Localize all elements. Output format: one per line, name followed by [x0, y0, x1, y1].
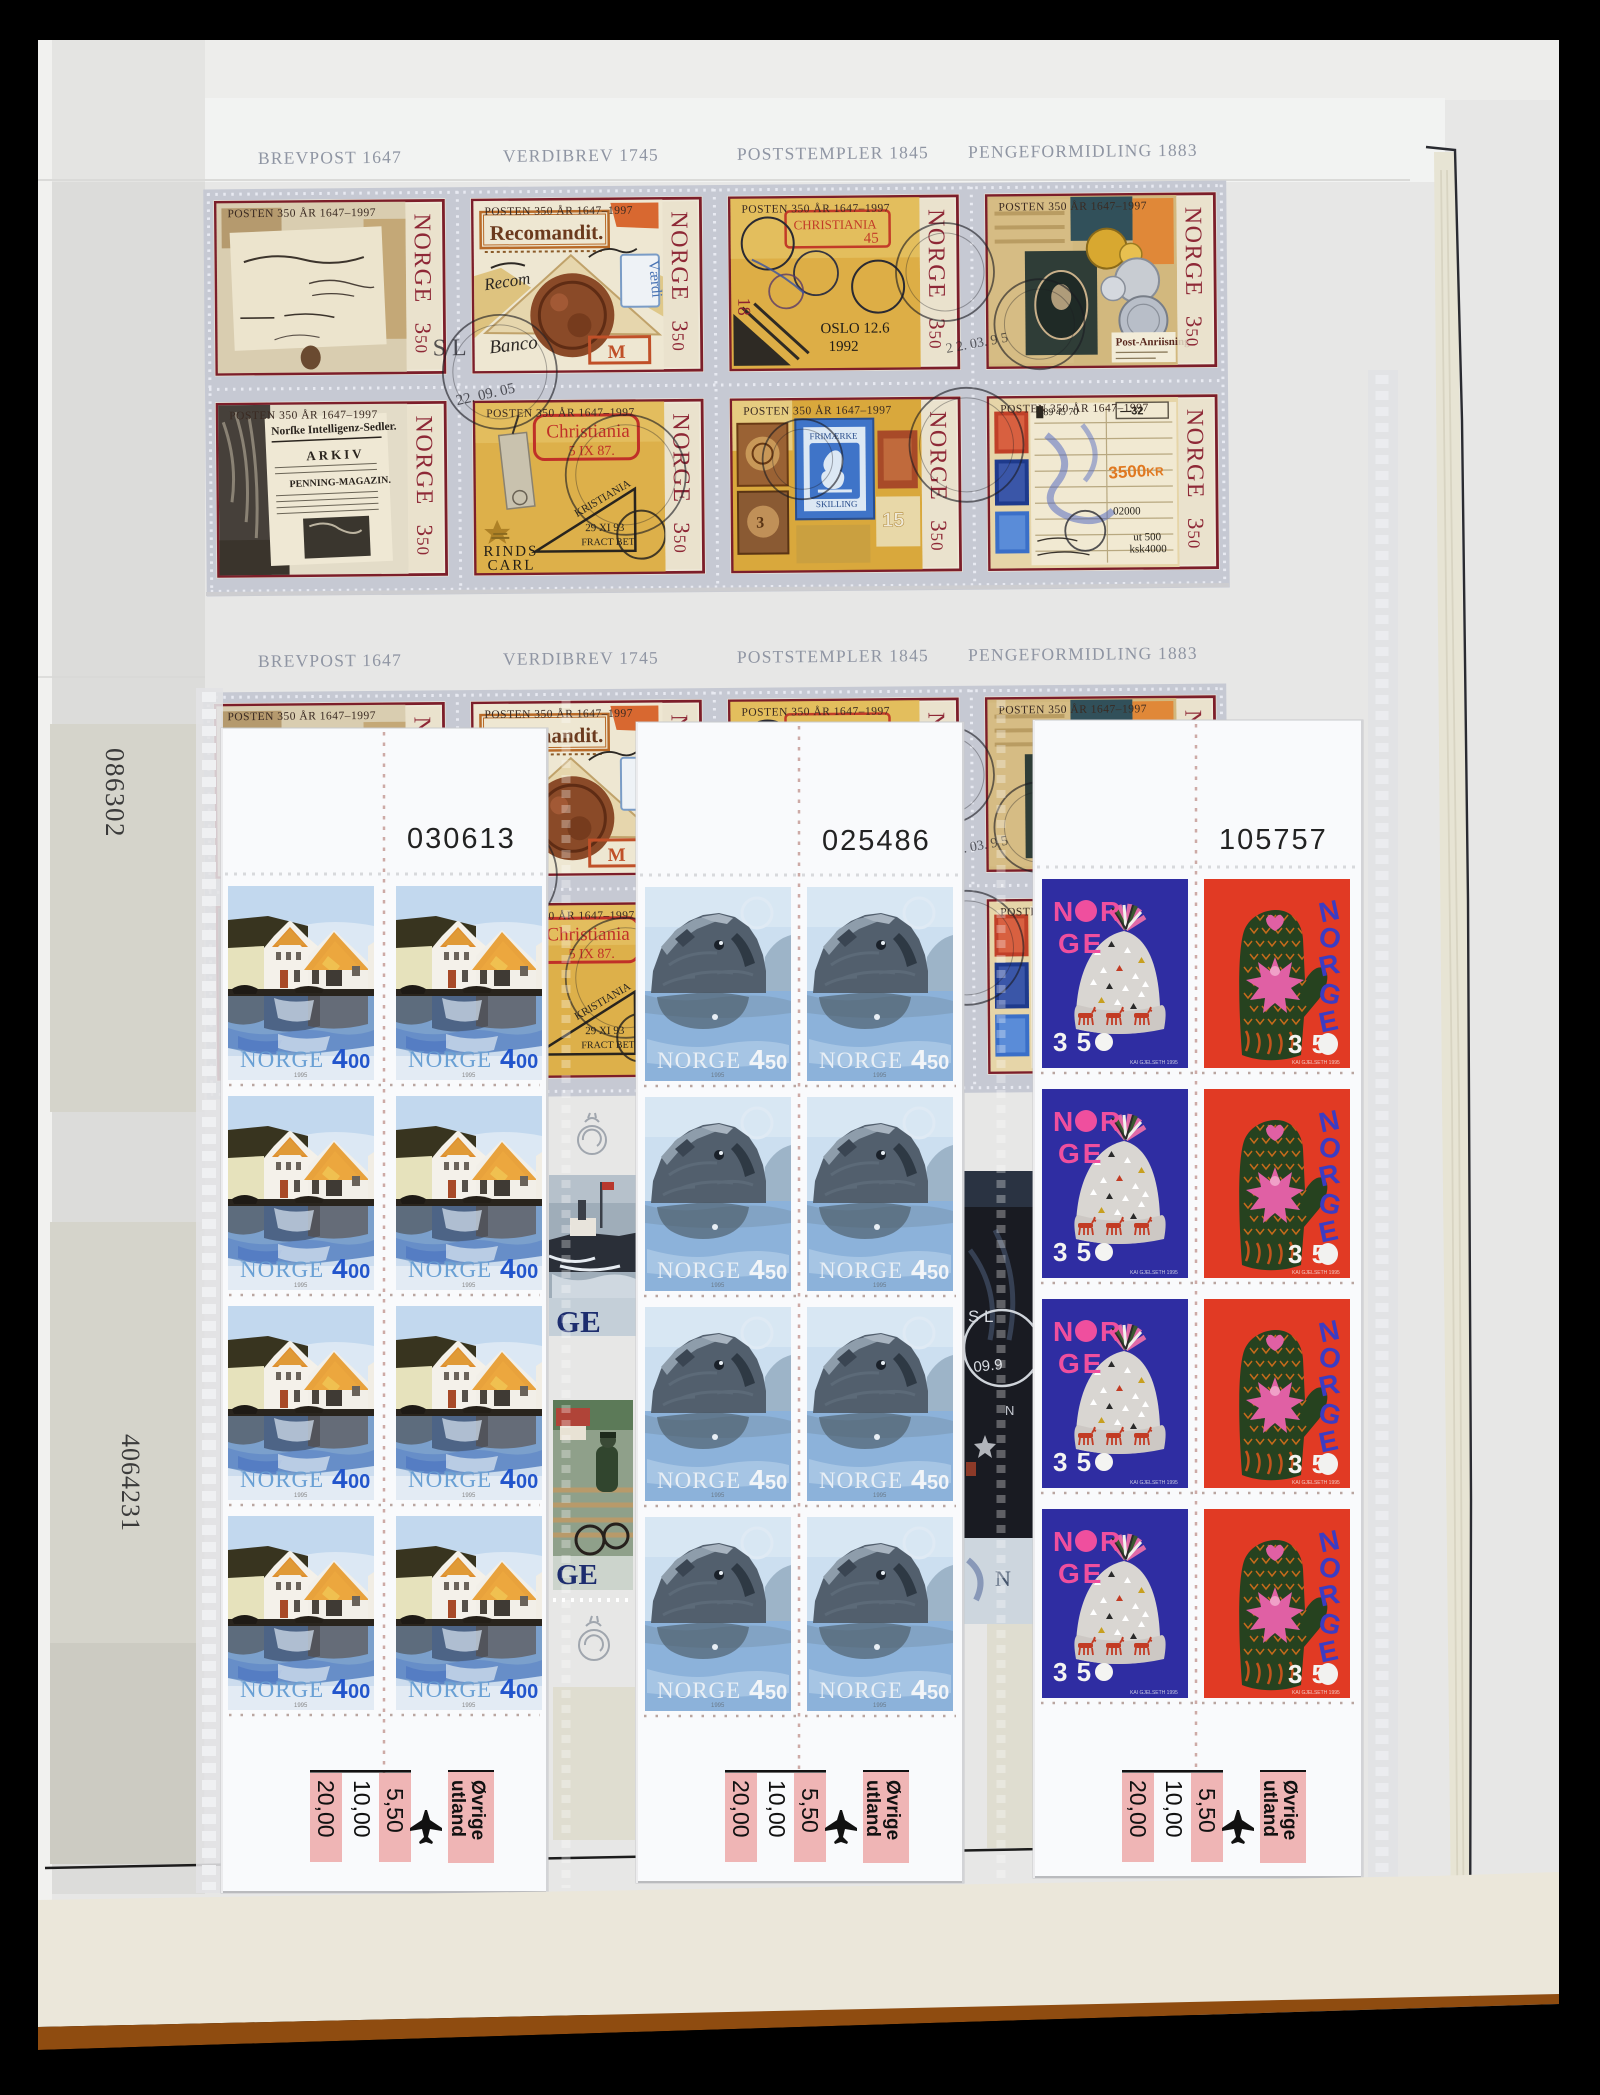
svg-text:10,00: 10,00 — [764, 1780, 790, 1838]
svg-text:4064231: 4064231 — [116, 1434, 145, 1532]
svg-text:20,00: 20,00 — [728, 1780, 754, 1838]
svg-text:S L: S L — [968, 1307, 994, 1326]
svg-text:utland: utland — [862, 1780, 883, 1837]
svg-text:030613: 030613 — [407, 823, 516, 855]
svg-text:Øvrige: Øvrige — [882, 1780, 903, 1840]
svg-text:025486: 025486 — [822, 825, 931, 857]
svg-text:20,00: 20,00 — [313, 1780, 339, 1838]
svg-text:5,50: 5,50 — [382, 1788, 408, 1833]
svg-text:105757: 105757 — [1219, 824, 1328, 856]
svg-text:5,50: 5,50 — [797, 1788, 823, 1833]
svg-text:utland: utland — [447, 1780, 468, 1837]
svg-text:5,50: 5,50 — [1194, 1788, 1220, 1833]
svg-text:utland: utland — [1259, 1780, 1280, 1837]
svg-text:20,00: 20,00 — [1125, 1780, 1151, 1838]
svg-text:086302: 086302 — [100, 748, 130, 838]
svg-text:Øvrige: Øvrige — [1279, 1780, 1300, 1840]
svg-text:10,00: 10,00 — [349, 1780, 375, 1838]
svg-text:Øvrige: Øvrige — [467, 1780, 488, 1840]
svg-text:10,00: 10,00 — [1161, 1780, 1187, 1838]
svg-text:N: N — [1005, 1403, 1014, 1418]
